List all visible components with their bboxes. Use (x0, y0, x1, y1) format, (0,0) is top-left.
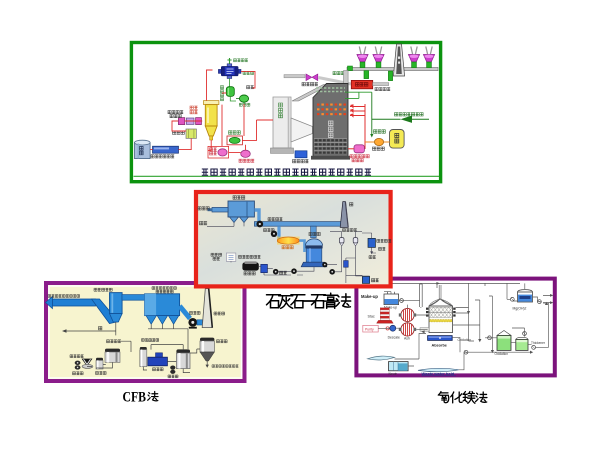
svg-text:Purity: Purity (365, 327, 374, 331)
svg-text:Absorbe: Absorbe (432, 343, 447, 347)
svg-text:Neutr: Neutr (389, 372, 398, 376)
svg-text:CFB: CFB (123, 390, 147, 406)
svg-text:Stac: Stac (368, 315, 375, 319)
svg-text:Oxidation: Oxidation (458, 338, 472, 342)
svg-text:Mg(OH)2: Mg(OH)2 (513, 306, 527, 310)
svg-text:Thickener: Thickener (531, 341, 546, 345)
svg-text:Waste water hold: Waste water hold (422, 371, 455, 376)
svg-text:Ash: Ash (404, 336, 410, 340)
svg-text:Make-up: Make-up (361, 294, 378, 299)
svg-text:Descale: Descale (388, 336, 400, 340)
svg-text:Oxidation: Oxidation (495, 352, 509, 356)
